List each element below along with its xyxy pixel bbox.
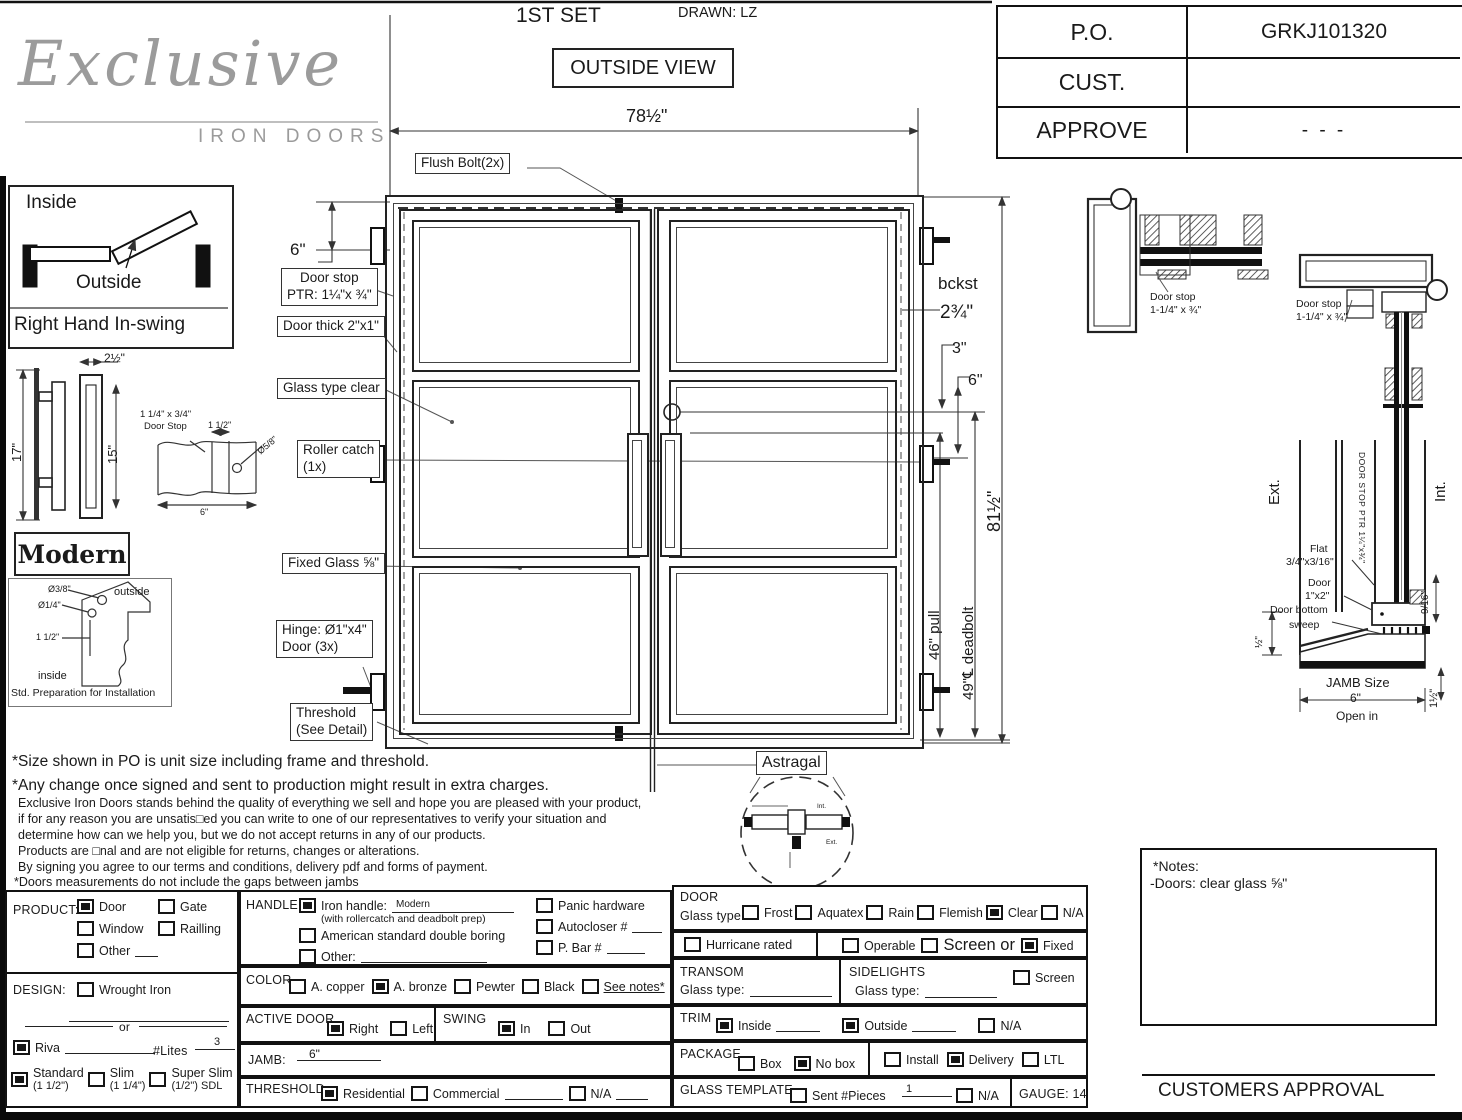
callout-astragal: Astragal xyxy=(756,751,827,775)
option-aquatex: Aquatex xyxy=(795,905,863,920)
detailB-doorstop-l1: Door stop xyxy=(1296,298,1342,310)
callout-roller-catch: Roller catch (1x) xyxy=(297,440,380,478)
option-no-box: No box xyxy=(794,1056,856,1071)
po-label: P.O. xyxy=(998,7,1188,59)
checkbox[interactable] xyxy=(794,1056,811,1071)
po-value[interactable]: GRKJ101320 xyxy=(1188,7,1460,59)
prep-dia-2: Ø1/4" xyxy=(38,600,61,610)
iron-handle-value[interactable]: Modern xyxy=(392,899,514,913)
approval-signature-line[interactable] xyxy=(1142,1074,1435,1076)
jamb-size-label: JAMB Size xyxy=(1326,676,1390,691)
checkbox[interactable] xyxy=(299,928,316,943)
operable-section: OperableScreen orFixed xyxy=(816,931,1088,958)
checkbox[interactable] xyxy=(884,1052,901,1067)
checkbox[interactable] xyxy=(522,979,539,994)
notes-box[interactable]: *Notes: -Doors: clear glass ⅝" xyxy=(1140,848,1437,1026)
option-in: In xyxy=(498,1021,530,1036)
checkbox[interactable] xyxy=(372,979,389,994)
glass-pane-inner xyxy=(419,227,631,363)
outside-label: Outside xyxy=(76,272,141,294)
dim-17: 17" xyxy=(10,443,25,462)
option-a-copper: A. copper xyxy=(289,979,365,994)
checkbox[interactable] xyxy=(738,1056,755,1071)
checkbox[interactable] xyxy=(327,1021,344,1036)
option-american-standard: American standard double boring xyxy=(299,928,505,943)
option-operable: Operable xyxy=(842,938,915,953)
jamb-size-value: 6" xyxy=(1350,692,1361,706)
callout-threshold: Threshold (See Detail) xyxy=(290,703,373,741)
checkbox[interactable] xyxy=(978,1018,995,1033)
checkbox[interactable] xyxy=(411,1086,428,1101)
jamb-value[interactable]: 6" xyxy=(297,1047,381,1061)
glass-pane-inner xyxy=(676,573,888,715)
option-rain: Rain xyxy=(866,905,914,920)
detailB-doorstop-l2: 1-1/4" x ¾" xyxy=(1296,311,1347,323)
option-autocloser-: Autocloser # xyxy=(536,919,662,934)
door-spec-sheet: Exclusive IRON DOORS 1ST SET DRAWN: LZ O… xyxy=(0,0,1462,1120)
delivery-options: InstallDeliveryLTL xyxy=(884,1052,1064,1067)
checkbox[interactable] xyxy=(88,1072,105,1087)
checkbox[interactable] xyxy=(582,979,599,994)
dim-height: 81½" xyxy=(984,491,1005,532)
dim-3: 3" xyxy=(952,340,967,358)
outside-view-label: OUTSIDE VIEW xyxy=(552,48,734,88)
package-section: PACKAGE BoxNo box xyxy=(672,1041,870,1077)
design-section: DESIGN: Wrought Iron or Riva #Lites 3 St… xyxy=(5,972,239,1108)
option-standard: Standard(1 1/2") xyxy=(11,1066,84,1092)
logo-script: Exclusive xyxy=(18,28,343,99)
checkbox[interactable] xyxy=(536,940,553,955)
approve-label: APPROVE xyxy=(998,108,1188,153)
dim-width: 78½" xyxy=(622,106,671,127)
option-hurricane-rated: Hurricane rated xyxy=(684,937,792,952)
checkbox[interactable] xyxy=(454,979,471,994)
door-glass-section: DOOR Glass type FrostAquatexRainFlemishC… xyxy=(672,885,1088,931)
option-outside: Outside xyxy=(842,1018,956,1033)
checkbox[interactable] xyxy=(742,905,759,920)
notes-line: -Doors: clear glass ⅝" xyxy=(1150,875,1287,891)
delivery-section: InstallDeliveryLTL xyxy=(868,1041,1088,1077)
hurricane-options: Hurricane rated xyxy=(684,937,792,952)
prep-inside-label: inside xyxy=(38,670,67,683)
stop-detail-line2: Door Stop xyxy=(144,422,187,433)
glass-pane-inner xyxy=(419,387,631,549)
lites-value[interactable]: 3 xyxy=(195,1036,235,1050)
checkbox[interactable] xyxy=(917,905,934,920)
dim-bckst-val: 2¾" xyxy=(940,302,973,324)
design-wrought-option: Wrought Iron xyxy=(77,982,171,997)
option-n-a: N/A xyxy=(1041,905,1084,920)
checkbox[interactable] xyxy=(795,905,812,920)
dim-6: 6" xyxy=(968,372,983,390)
logo-subtitle: IRON DOORS xyxy=(198,126,390,148)
option-install: Install xyxy=(884,1052,939,1067)
option-window: Window xyxy=(77,921,158,936)
prep-dim: 1 1/2" xyxy=(36,632,59,642)
dim-nine16: 9/16" xyxy=(1420,591,1432,614)
disclaimer-small-6: *Doors measurements do not include the g… xyxy=(14,875,359,889)
option-gate: Gate xyxy=(158,899,239,914)
checkbox[interactable] xyxy=(1022,1052,1039,1067)
handle-right-options: Panic hardwareAutocloser #P. Bar # xyxy=(536,898,662,955)
dim-2half: 2½" xyxy=(104,352,125,366)
jamb-section: JAMB: 6" xyxy=(239,1043,672,1077)
checkbox[interactable] xyxy=(77,943,94,958)
dim-pull: 46" pull xyxy=(926,610,943,660)
flat-l2: 3/4"x3/16" xyxy=(1286,556,1334,568)
option-a-bronze: A. bronze xyxy=(372,979,448,994)
callout-flush-bolt: Flush Bolt(2x) xyxy=(415,153,510,174)
package-box-options: BoxNo box xyxy=(738,1056,855,1071)
option-p-bar-: P. Bar # xyxy=(536,940,645,955)
stop-detail-line1: 1 1/4" x 3/4" xyxy=(140,410,191,421)
checkbox[interactable] xyxy=(569,1086,586,1101)
disclaimer-small-5: By signing you agree to our terms and co… xyxy=(18,860,488,874)
disclaimer-small-3: determine how can we help you, but we do… xyxy=(18,828,486,842)
checkbox[interactable] xyxy=(158,921,175,936)
threshold-options: ResidentialCommercialN/A xyxy=(321,1086,648,1101)
handle-section: HANDLE Iron handle: Modern (with rollerc… xyxy=(239,890,672,966)
option-ltl: LTL xyxy=(1022,1052,1065,1067)
stop-dim-3: 6" xyxy=(200,507,208,517)
checkbox[interactable] xyxy=(11,1072,28,1087)
swing-section: SWING InOut xyxy=(434,1006,672,1043)
astragal-int-label: Int. xyxy=(817,803,826,810)
option-flemish: Flemish xyxy=(917,905,983,920)
checkbox[interactable] xyxy=(684,937,701,952)
approval-label: CUSTOMERS APPROVAL xyxy=(1158,1080,1384,1102)
design-style-options: Standard(1 1/2")Slim(1 1/4")Super Slim(1… xyxy=(11,1066,233,1092)
option-wrought-iron: Wrought Iron xyxy=(77,982,171,997)
glass-template-na-option: N/A xyxy=(956,1088,999,1103)
checkbox[interactable] xyxy=(77,899,94,914)
int-label: Int. xyxy=(1432,481,1449,502)
glass-pane-inner xyxy=(676,387,888,549)
checkbox[interactable] xyxy=(842,1018,859,1033)
option-black: Black xyxy=(522,979,575,994)
astragal-ext-label: Ext. xyxy=(826,839,837,846)
callout-glass-type: Glass type clear xyxy=(277,378,386,399)
checkbox[interactable] xyxy=(921,938,938,953)
option-railling: Railling xyxy=(158,921,239,936)
option-see-notes-: See notes* xyxy=(582,979,665,994)
pull-handle-right-inner xyxy=(665,440,675,548)
checkbox[interactable] xyxy=(289,979,306,994)
door12-l2: 1"x2" xyxy=(1305,590,1329,602)
option-commercial: Commercial xyxy=(411,1086,563,1101)
checkbox[interactable] xyxy=(13,1040,30,1055)
stop-dim-1: 1 1/2" xyxy=(208,420,231,430)
glass-template-section: GLASS TEMPLATE Sent #Pieces 1 N/A xyxy=(672,1077,1012,1108)
dim-half: ½" xyxy=(1254,636,1266,648)
option-clear: Clear xyxy=(986,905,1038,920)
approve-value[interactable]: - - - xyxy=(1188,108,1460,153)
hurricane-section: Hurricane rated xyxy=(672,931,818,958)
checkbox[interactable] xyxy=(790,1088,807,1103)
option-panic-hardware: Panic hardware xyxy=(536,898,645,913)
flat-l1: Flat xyxy=(1310,543,1328,555)
door12-l1: Door xyxy=(1308,577,1331,589)
prep-outside-label: outside xyxy=(114,586,149,599)
option-n-a: N/A xyxy=(978,1018,1021,1033)
open-in-label: Open in xyxy=(1336,710,1378,724)
design-riva-option: Riva xyxy=(13,1040,155,1055)
option-frost: Frost xyxy=(742,905,792,920)
detailA-doorstop-l1: Door stop xyxy=(1150,291,1196,303)
option-door: Door xyxy=(77,899,158,914)
checkbox[interactable] xyxy=(77,982,94,997)
checkbox[interactable] xyxy=(299,898,316,913)
option-slim: Slim(1 1/4") xyxy=(88,1066,146,1092)
checkbox[interactable] xyxy=(321,1086,338,1101)
swing-options: InOut xyxy=(498,1021,591,1036)
option-inside: Inside xyxy=(716,1018,820,1033)
color-section: COLOR A. copperA. bronzePewterBlackSee n… xyxy=(239,966,672,1006)
sweep-l2: sweep xyxy=(1289,619,1319,631)
checkbox[interactable] xyxy=(716,1018,733,1033)
checkbox[interactable] xyxy=(986,905,1003,920)
option-out: Out xyxy=(548,1021,590,1036)
option-screen: Screen xyxy=(1013,970,1075,985)
option-sent-pieces: Sent #Pieces xyxy=(790,1088,886,1103)
option-residential: Residential xyxy=(321,1086,405,1101)
dim-15: 15" xyxy=(106,445,121,464)
active-door-section: ACTIVE DOOR RightLeft xyxy=(239,1006,436,1043)
checkbox[interactable] xyxy=(1013,970,1030,985)
swing-caption: Right Hand In-swing xyxy=(14,314,185,336)
option-handle-other: Other: xyxy=(299,949,487,964)
sidelights-section: SIDELIGHTS Glass type: Screen xyxy=(839,958,1088,1005)
prep-caption: Std. Preparation for Installation xyxy=(11,687,155,699)
pieces-value[interactable]: 1 xyxy=(902,1083,952,1097)
disclaimer-small-2: if for any reason you are unsatis□ed you… xyxy=(18,812,606,826)
notes-title: *Notes: xyxy=(1153,858,1199,874)
checkbox[interactable] xyxy=(158,899,175,914)
product-options: DoorGateWindowRaillingOther xyxy=(77,899,239,958)
cust-value[interactable] xyxy=(1188,59,1460,108)
option-n-a: N/A xyxy=(569,1086,649,1101)
option-screen-or: Screen or xyxy=(921,936,1015,955)
dim-bckst: bckst xyxy=(938,274,978,294)
dim-top-offset: 6" xyxy=(290,240,306,260)
inside-label: Inside xyxy=(26,192,77,214)
checkbox[interactable] xyxy=(947,1052,964,1067)
checkbox[interactable] xyxy=(548,1021,565,1036)
trim-section: TRIM InsideOutsideN/A xyxy=(672,1005,1088,1041)
option-iron-handle: Iron handle: Modern xyxy=(299,898,514,913)
gauge-section: GAUGE: 14 xyxy=(1010,1077,1088,1108)
dim-one-half: 1½" xyxy=(1428,689,1441,708)
drawn-by-label: DRAWN: LZ xyxy=(678,5,757,22)
disclaimer-line-1: *Size shown in PO is unit size including… xyxy=(12,753,429,771)
callout-hinge: Hinge: Ø1"x4" Door (3x) xyxy=(276,620,373,658)
operable-options: OperableScreen orFixed xyxy=(842,936,1074,955)
checkbox[interactable] xyxy=(77,921,94,936)
sidelights-screen-option: Screen xyxy=(1013,970,1075,985)
checkbox[interactable] xyxy=(149,1072,166,1087)
po-table: P.O. GRKJ101320 CUST. APPROVE - - - xyxy=(996,5,1462,159)
option-right: Right xyxy=(327,1021,378,1036)
active-door-options: RightLeft xyxy=(327,1021,433,1036)
transom-section: TRANSOM Glass type: xyxy=(672,958,841,1005)
set-label: 1ST SET xyxy=(516,4,601,28)
color-options: A. copperA. bronzePewterBlackSee notes* xyxy=(289,979,665,994)
option-fixed: Fixed xyxy=(1021,938,1074,953)
stop-dim-2: Ø5/8" xyxy=(255,434,279,457)
glass-pane-inner xyxy=(676,227,888,363)
checkbox[interactable] xyxy=(536,919,553,934)
callout-fixed-glass: Fixed Glass ⅝" xyxy=(282,553,385,574)
disclaimer-small-4: Products are □nal and are not eligible f… xyxy=(18,844,420,858)
checkbox[interactable] xyxy=(956,1088,973,1103)
checkbox[interactable] xyxy=(390,1021,407,1036)
disclaimer-line-2: *Any change once signed and sent to prod… xyxy=(12,777,549,795)
option-pewter: Pewter xyxy=(454,979,515,994)
option-super-slim: Super Slim(1/2") SDL xyxy=(149,1066,232,1092)
ext-label: Ext. xyxy=(1266,479,1283,505)
disclaimer-small-1: Exclusive Iron Doors stands behind the q… xyxy=(18,796,641,810)
checkbox[interactable] xyxy=(1041,905,1058,920)
sweep-l1: Door bottom xyxy=(1270,604,1328,616)
cust-label: CUST. xyxy=(998,59,1188,108)
option-riva: Riva xyxy=(13,1040,155,1055)
option-left: Left xyxy=(390,1021,433,1036)
product-section: PRODUCT: DoorGateWindowRaillingOther xyxy=(5,890,239,974)
checkbox[interactable] xyxy=(498,1021,515,1036)
threshold-section: THRESHOLD ResidentialCommercialN/A xyxy=(239,1077,672,1108)
detailA-doorstop-l2: 1-1/4" x ¾" xyxy=(1150,304,1201,316)
callout-door-thick: Door thick 2"x1" xyxy=(277,316,385,337)
door-glass-options: FrostAquatexRainFlemishClearN/A xyxy=(742,905,1084,920)
checkbox[interactable] xyxy=(866,905,883,920)
checkbox[interactable] xyxy=(1021,938,1038,953)
pull-handle-left-inner xyxy=(632,440,642,548)
option-box: Box xyxy=(738,1056,782,1071)
option-delivery: Delivery xyxy=(947,1052,1014,1067)
style-name-box: Modern xyxy=(14,532,130,576)
option-other: Other xyxy=(77,943,158,958)
dim-deadbolt: 49"℄ deadbolt xyxy=(960,607,977,700)
doorstop-ptr-label: DOOR STOP PTR 1¼"x¾" xyxy=(1356,452,1366,564)
callout-door-stop: Door stop PTR: 1¼"x ¾" xyxy=(281,268,378,306)
prep-dia-1: Ø3/8" xyxy=(48,584,71,594)
trim-options: InsideOutsideN/A xyxy=(716,1018,1021,1033)
checkbox[interactable] xyxy=(842,938,859,953)
option-n-a: N/A xyxy=(956,1088,999,1103)
checkbox[interactable] xyxy=(299,949,316,964)
glass-pane-inner xyxy=(419,573,631,715)
glass-template-sent-option: Sent #Pieces xyxy=(790,1088,886,1103)
checkbox[interactable] xyxy=(536,898,553,913)
